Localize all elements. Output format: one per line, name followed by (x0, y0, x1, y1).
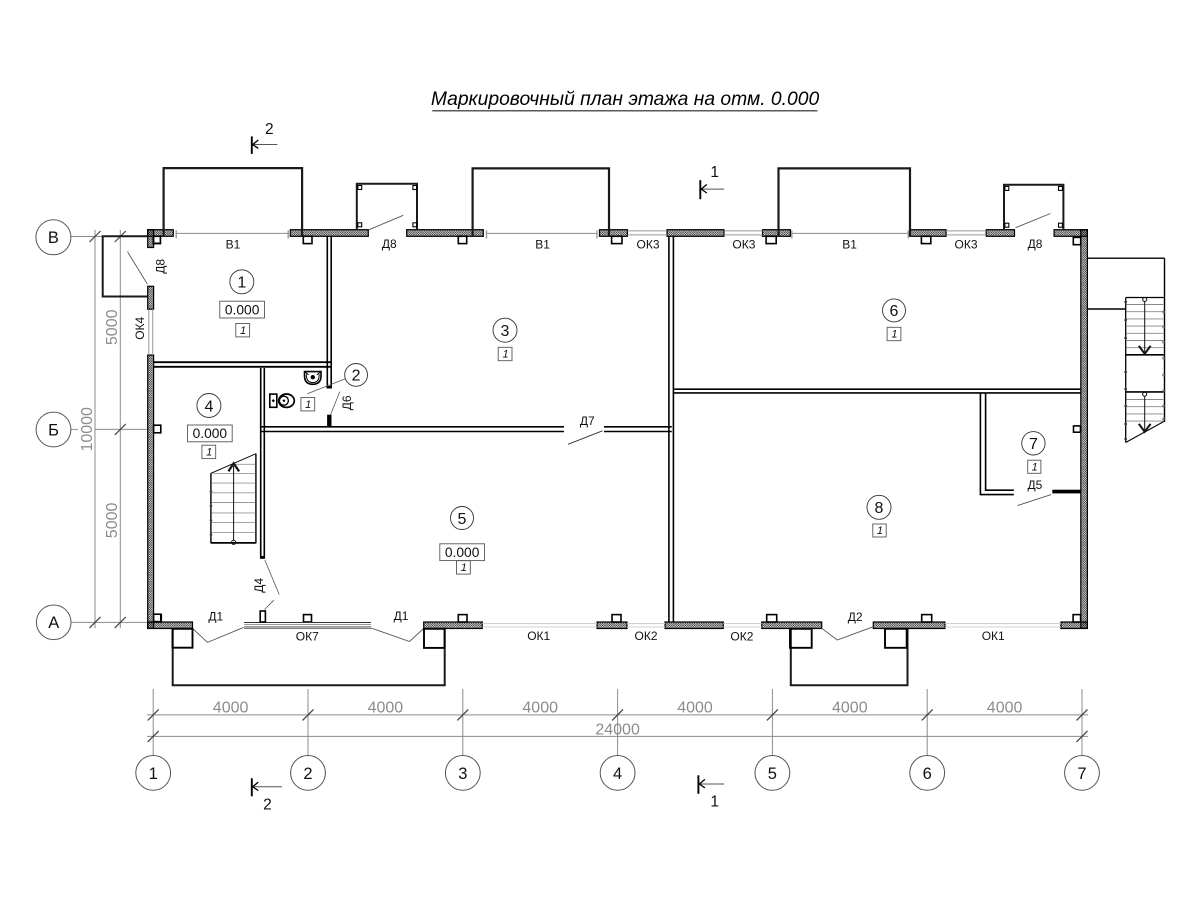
svg-text:ОК1: ОК1 (982, 629, 1005, 643)
svg-text:Д8: Д8 (382, 237, 397, 251)
svg-text:ОК2: ОК2 (635, 629, 658, 643)
svg-text:Маркировочный план этажа на от: Маркировочный план этажа на отм. 0.000 (431, 89, 820, 110)
svg-text:7: 7 (1077, 765, 1086, 783)
svg-text:1: 1 (461, 562, 467, 574)
svg-text:1: 1 (710, 794, 719, 811)
svg-text:7: 7 (1029, 436, 1038, 453)
svg-text:ОК3: ОК3 (955, 238, 978, 252)
svg-text:4: 4 (204, 398, 213, 415)
svg-text:А: А (48, 614, 59, 632)
svg-text:Б: Б (48, 421, 59, 439)
svg-text:24000: 24000 (595, 722, 640, 739)
svg-text:4000: 4000 (987, 700, 1023, 717)
svg-text:1: 1 (891, 329, 897, 341)
svg-text:0.000: 0.000 (445, 545, 480, 560)
svg-text:ОК2: ОК2 (730, 630, 753, 644)
svg-text:Д1: Д1 (208, 610, 223, 624)
svg-text:5: 5 (768, 765, 777, 783)
svg-text:В1: В1 (842, 237, 857, 251)
svg-text:В1: В1 (226, 237, 241, 251)
svg-text:ОК3: ОК3 (732, 238, 755, 252)
svg-text:Д5: Д5 (1027, 478, 1042, 492)
svg-text:Д8: Д8 (153, 259, 167, 274)
svg-text:10000: 10000 (79, 407, 96, 452)
svg-text:В1: В1 (535, 237, 550, 251)
svg-text:5000: 5000 (104, 309, 121, 345)
svg-text:1: 1 (502, 349, 508, 361)
svg-text:1: 1 (305, 399, 311, 411)
svg-text:5: 5 (458, 511, 467, 528)
svg-text:5000: 5000 (104, 503, 121, 539)
svg-text:2: 2 (265, 121, 274, 138)
svg-text:1: 1 (149, 765, 158, 783)
svg-text:ОК4: ОК4 (133, 316, 147, 339)
svg-text:Д2: Д2 (848, 610, 863, 624)
svg-text:4: 4 (613, 765, 622, 783)
svg-text:0.000: 0.000 (193, 426, 228, 441)
svg-text:2: 2 (303, 765, 312, 783)
svg-text:6: 6 (890, 303, 899, 320)
svg-text:4000: 4000 (522, 700, 558, 717)
svg-text:Д1: Д1 (394, 609, 409, 623)
svg-text:Д8: Д8 (1028, 237, 1043, 251)
svg-text:0.000: 0.000 (225, 302, 260, 317)
svg-text:ОК7: ОК7 (296, 630, 319, 644)
svg-text:2: 2 (352, 368, 361, 385)
svg-text:ОК3: ОК3 (637, 238, 660, 252)
svg-text:1: 1 (206, 447, 212, 459)
svg-text:4000: 4000 (832, 700, 868, 717)
svg-text:2: 2 (263, 796, 272, 813)
svg-text:3: 3 (501, 323, 510, 340)
svg-text:1: 1 (240, 325, 246, 337)
svg-text:Д4: Д4 (252, 578, 266, 593)
svg-text:4000: 4000 (677, 700, 713, 717)
svg-text:1: 1 (710, 164, 719, 181)
svg-text:ОК1: ОК1 (527, 629, 550, 643)
svg-text:В: В (48, 229, 59, 247)
svg-text:Д7: Д7 (580, 414, 595, 428)
svg-text:1: 1 (237, 275, 246, 292)
svg-text:1: 1 (877, 525, 883, 537)
svg-text:6: 6 (923, 765, 932, 783)
svg-text:4000: 4000 (213, 700, 249, 717)
svg-text:Д6: Д6 (340, 395, 354, 410)
svg-text:8: 8 (875, 500, 884, 517)
svg-text:1: 1 (1032, 461, 1038, 473)
svg-text:4000: 4000 (368, 700, 404, 717)
svg-text:3: 3 (458, 765, 467, 783)
